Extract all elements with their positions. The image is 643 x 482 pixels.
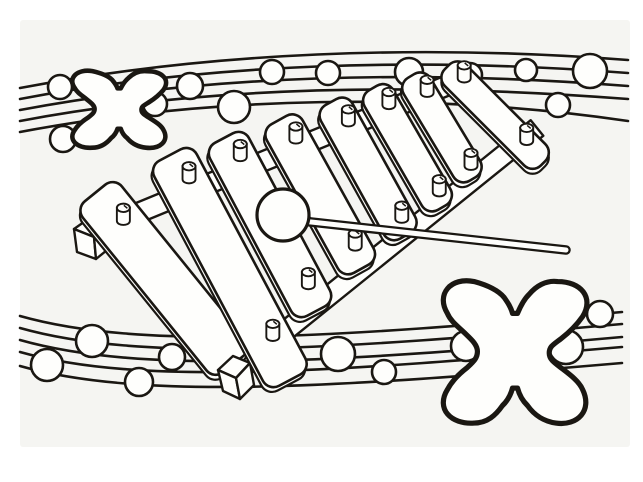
bar-peg (520, 124, 533, 145)
peg-top (289, 122, 302, 130)
note-ball (573, 54, 607, 88)
note-ball (125, 368, 153, 396)
peg-top (395, 202, 408, 210)
peg-top (520, 124, 533, 132)
note-ball (260, 60, 284, 84)
peg-top (458, 61, 471, 69)
bar-peg (421, 76, 434, 97)
bar-peg (349, 229, 362, 250)
mallet-head (257, 189, 309, 241)
note-ball (159, 344, 185, 370)
peg-top (302, 268, 315, 276)
peg-top (421, 76, 434, 84)
bar-peg (465, 149, 478, 170)
coloring-page-canvas: Black and white coloring page: the lette… (0, 0, 643, 482)
note-ball (546, 93, 570, 117)
peg-top (433, 175, 446, 183)
note-ball (316, 61, 340, 85)
peg-top (465, 149, 478, 157)
peg-top (382, 88, 395, 96)
peg-top (183, 162, 196, 170)
peg-top (234, 140, 247, 148)
bar-peg (183, 162, 196, 183)
note-ball (321, 337, 355, 371)
note-ball (218, 91, 250, 123)
bar-peg (234, 140, 247, 161)
bar-peg (433, 175, 446, 196)
note-ball (76, 325, 108, 357)
bar-peg (302, 268, 315, 289)
coloring-page: Black and white coloring page: the lette… (0, 0, 643, 482)
bar-peg (266, 320, 279, 341)
note-ball (48, 75, 72, 99)
bar-peg (289, 122, 302, 143)
note-ball (515, 59, 537, 81)
bar-peg (342, 105, 355, 126)
bar-peg (117, 204, 130, 225)
note-ball (372, 360, 396, 384)
bar-peg (395, 202, 408, 223)
note-ball (177, 73, 203, 99)
peg-top (342, 105, 355, 113)
peg-top (117, 204, 130, 212)
peg-top (266, 320, 279, 328)
bar-peg (382, 88, 395, 109)
note-ball (31, 349, 63, 381)
bar-peg (458, 61, 471, 82)
note-ball (587, 301, 613, 327)
